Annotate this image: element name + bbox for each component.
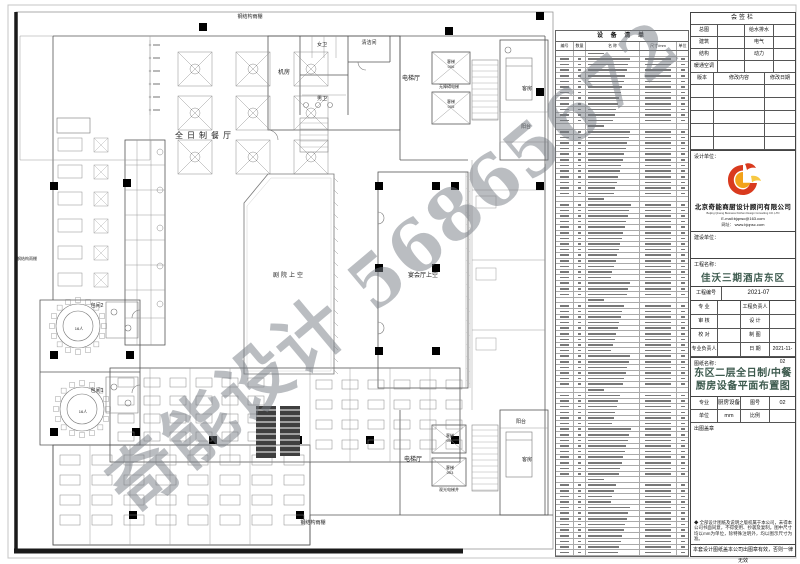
spec-grid: 专业厨房设备图号02单位mm比例 bbox=[691, 397, 795, 423]
revision-row bbox=[691, 137, 795, 150]
stamp-box: 出图盖章 ◆ 全部设计图纸及说明之版权属于本公司，未得本公司书面同意，不得使用、… bbox=[691, 423, 795, 545]
drawing-name-box: 图纸名称： 东区二层全日制/中餐厨房设备平面布置图 bbox=[691, 358, 795, 397]
stamp-label: 出图盖章 bbox=[694, 425, 792, 432]
room-label: 女卫 bbox=[317, 41, 327, 48]
field-row: 审 核设 计 bbox=[691, 315, 795, 329]
room-label: 包间2 bbox=[91, 302, 104, 309]
room-label: 客房 bbox=[522, 456, 532, 463]
company-logo bbox=[723, 160, 763, 200]
equipment-list-header: 编号 数量 名 称 尺寸/mm 单位 bbox=[556, 42, 688, 51]
project-name-label: 工程名称： bbox=[694, 261, 792, 268]
revision-row bbox=[691, 98, 795, 111]
room-label: 16人 bbox=[75, 326, 83, 331]
spec-row: 专业厨房设备图号02 bbox=[691, 397, 795, 410]
revision-row bbox=[691, 85, 795, 98]
drawing-sheet: 钢结构雨棚全日制餐厅机房女卫男卫清洁间电梯厅客梯006无障碍电梯客梯005客房阳… bbox=[0, 0, 800, 564]
equipment-list-title: 设 备 清 单 bbox=[556, 31, 688, 42]
revision-row bbox=[691, 111, 795, 124]
room-label: 剧院上空 bbox=[273, 271, 305, 279]
project-number-label: 工程编号 bbox=[691, 287, 722, 300]
client-box: 建设单位： bbox=[691, 232, 795, 259]
room-label: 男卫 bbox=[317, 96, 327, 102]
signature-row: 结构动力 bbox=[691, 49, 795, 61]
client-label: 建设单位： bbox=[694, 235, 719, 241]
room-label: 客房 bbox=[522, 85, 532, 92]
company-website: 网址： www.bjqnsc.com bbox=[694, 222, 792, 228]
copyright-notice: ◆ 全部设计图纸及说明之版权属于本公司，未得本公司书面同意，不得使用、抄袭及复制… bbox=[694, 520, 792, 542]
room-label: 机房 bbox=[278, 68, 290, 76]
field-row: 专 业工程负责人 bbox=[691, 301, 795, 315]
room-label: 钢结构雨棚 bbox=[17, 255, 37, 261]
room-label: 003 bbox=[447, 470, 454, 475]
project-name: 佳沃三期酒店东区 bbox=[694, 270, 792, 284]
room-label: 宴会厅上空 bbox=[408, 271, 438, 279]
design-unit-box: 设计单位： 北京奇能商厨设计顾问有限公司 Beijing Qineng Busi… bbox=[691, 151, 795, 232]
room-label: 无障碍电梯 bbox=[439, 83, 459, 89]
room-label: 电梯厅 bbox=[404, 455, 422, 463]
field-grid: 专 业工程负责人审 核设 计校 对制 图专业负责人日 期2021-11-02 bbox=[691, 301, 795, 358]
table-row bbox=[556, 550, 688, 556]
drawing-name: 东区二层全日制/中餐厨房设备平面布置图 bbox=[694, 367, 792, 393]
revision-header: 版本 修改内容 修改日期 bbox=[691, 73, 795, 85]
title-block: 会签栏 总图给水排水建筑电气结构动力暖通空调 版本 修改内容 修改日期 设计单位… bbox=[690, 12, 796, 557]
room-label: 16人 bbox=[79, 409, 87, 414]
room-label: 006 bbox=[448, 64, 455, 69]
project-number: 2021-07 bbox=[722, 287, 795, 300]
signature-row: 建筑电气 bbox=[691, 37, 795, 49]
room-label: 观光电梯井 bbox=[439, 486, 459, 492]
company-name-en: Beijing Qineng Business Kitchen Design C… bbox=[699, 211, 787, 215]
room-label: 包间1 bbox=[91, 387, 104, 394]
project-number-row: 工程编号 2021-07 bbox=[691, 287, 795, 301]
field-row: 专业负责人日 期2021-11-02 bbox=[691, 343, 795, 357]
design-unit-label: 设计单位： bbox=[694, 153, 792, 160]
drawing-name-label: 图纸名称： bbox=[694, 360, 792, 367]
plan-frame bbox=[16, 12, 553, 549]
revision-row bbox=[691, 124, 795, 137]
field-row: 校 对制 图 bbox=[691, 329, 795, 343]
signature-bar-title: 会签栏 bbox=[691, 13, 795, 25]
company-email: E-mail:bjqnsc@163.com bbox=[694, 216, 792, 221]
room-label: 清洁间 bbox=[361, 39, 376, 46]
room-label: 004 bbox=[447, 438, 454, 443]
equipment-list-table: 设 备 清 单 编号 数量 名 称 尺寸/mm 单位 bbox=[555, 30, 689, 557]
room-label: 电梯厅 bbox=[402, 74, 420, 82]
room-label: 阳台 bbox=[521, 123, 531, 130]
room-label: 钢结构雨棚 bbox=[300, 519, 325, 526]
signature-row: 总图给水排水 bbox=[691, 25, 795, 37]
validity-footer: 本套设计图纸盖本公司出图章有效，否则一律无效 bbox=[691, 545, 795, 556]
signature-row: 暖通空调 bbox=[691, 61, 795, 73]
room-label: 阳台 bbox=[516, 418, 526, 425]
project-name-box: 工程名称： 佳沃三期酒店东区 bbox=[691, 259, 795, 287]
room-label: 全日制餐厅 bbox=[175, 130, 235, 140]
signature-bar: 会签栏 总图给水排水建筑电气结构动力暖通空调 版本 修改内容 修改日期 bbox=[691, 13, 795, 151]
room-label: 005 bbox=[448, 104, 455, 109]
spec-row: 单位mm比例 bbox=[691, 410, 795, 423]
room-label: 钢结构雨棚 bbox=[237, 13, 262, 20]
company-name-cn: 北京奇能商厨设计顾问有限公司 bbox=[694, 201, 792, 211]
equipment-rows bbox=[556, 51, 688, 556]
